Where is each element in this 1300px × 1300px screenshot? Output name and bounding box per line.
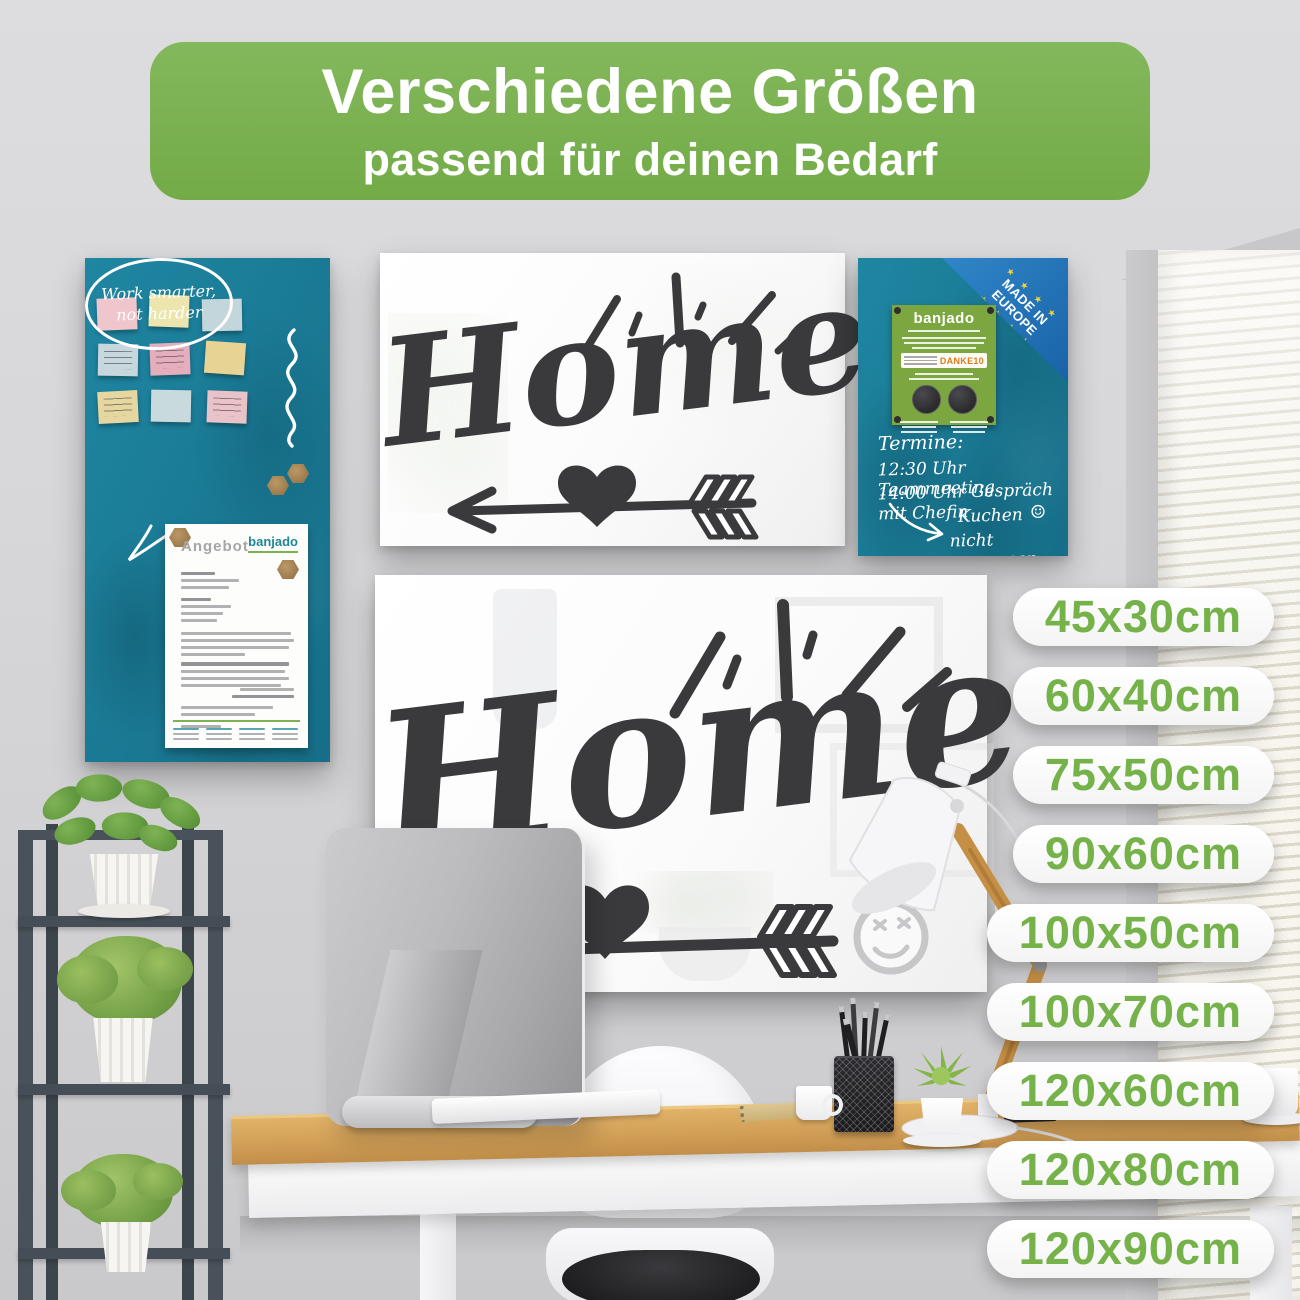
succulent-leaves	[903, 1046, 981, 1104]
home-board-small-doodles	[380, 253, 845, 546]
size-badge-list: 45x30cm 60x40cm 75x50cm 90x60cm 100x50cm…	[987, 588, 1274, 1278]
heart-arrow-icon	[452, 466, 756, 537]
size-badge: 75x50cm	[1013, 746, 1274, 804]
shelf-rail	[182, 824, 194, 1300]
heart-arrow-icon	[561, 885, 834, 975]
cork-magnet-icon	[267, 476, 289, 495]
plant-shelf	[18, 778, 233, 1300]
size-label: 100x50cm	[1019, 907, 1242, 959]
shelf-rail	[18, 836, 33, 1300]
document-title: Angebot	[181, 538, 249, 555]
reminder-word: Kuchen	[958, 505, 1023, 527]
page-title: Verschiedene Größen	[321, 56, 978, 128]
succulent-plant	[903, 1046, 981, 1109]
squiggle-doodle-icon	[280, 328, 304, 448]
coupon-box: DANKE10	[901, 353, 987, 368]
planner-board: MADE IN EUROPE banjado DANKE10	[858, 258, 1068, 556]
size-label: 60x40cm	[1045, 670, 1242, 722]
sticky-note	[97, 390, 139, 424]
desk-leg	[420, 1214, 456, 1300]
size-badge: 45x30cm	[1013, 588, 1274, 646]
brand-logo: banjado	[248, 534, 298, 553]
size-badge: 60x40cm	[1013, 667, 1274, 725]
size-label: 120x90cm	[1019, 1223, 1242, 1275]
size-badge: 90x60cm	[1013, 825, 1274, 883]
magnet-icon	[894, 307, 901, 314]
size-badge: 120x60cm	[987, 1062, 1274, 1120]
succulent-pot	[919, 1098, 965, 1138]
document-footer-columns	[173, 725, 300, 740]
home-board-small: Home	[380, 253, 845, 546]
magnet-icon	[987, 307, 994, 314]
product-scene: Verschiedene Größen passend für deinen B…	[0, 0, 1300, 1300]
plant-bush	[73, 1154, 173, 1228]
header-banner: Verschiedene Größen passend für deinen B…	[150, 42, 1150, 200]
sticky-note	[151, 390, 192, 423]
shelf-board	[18, 1084, 230, 1095]
size-label: 75x50cm	[1045, 749, 1242, 801]
magnet-icon	[987, 416, 994, 423]
dog-photos	[898, 385, 990, 414]
document-text-lines	[181, 594, 231, 622]
size-label: 90x60cm	[1045, 828, 1242, 880]
pot-saucer	[903, 1134, 981, 1147]
plant-pot	[98, 1222, 154, 1272]
plant-leaf	[52, 815, 97, 847]
offer-document: Angebot banjado	[165, 524, 308, 748]
speech-bubble: Work smarter, not harder	[83, 255, 234, 352]
plant-leaf	[74, 771, 123, 805]
page-subtitle: passend für deinen Bedarf	[362, 134, 937, 186]
size-badge: 120x90cm	[987, 1220, 1274, 1278]
smiley-icon: ☺	[1030, 502, 1047, 523]
size-badge: 120x80cm	[987, 1141, 1274, 1199]
schedule-heading: Termine:	[878, 431, 964, 455]
size-badge: 100x70cm	[987, 983, 1274, 1041]
speech-bubble-line2: not harder	[116, 302, 203, 326]
memo-board: Work smarter, not harder Angebot banjado	[85, 258, 330, 762]
pencil-holder	[834, 1056, 894, 1132]
dog-photo-icon	[948, 385, 977, 414]
dog-photo-icon	[912, 385, 941, 414]
sticky-note	[204, 341, 246, 376]
burst-lines-icon	[585, 277, 810, 351]
size-label: 45x30cm	[1045, 591, 1242, 643]
document-table-lines	[181, 658, 289, 687]
pot-saucer	[78, 904, 170, 918]
flyer: banjado DANKE10	[892, 305, 996, 425]
shelf-rail	[46, 824, 58, 1300]
sticky-note	[98, 344, 139, 377]
size-badge: 100x50cm	[987, 904, 1274, 962]
size-label: 120x80cm	[1019, 1144, 1242, 1196]
flyer-brand: banjado	[898, 310, 990, 327]
plant-pot	[90, 1018, 156, 1082]
size-label: 100x70cm	[1019, 986, 1242, 1038]
document-text-lines	[181, 568, 239, 589]
burst-lines-icon	[675, 605, 947, 713]
coffee-cup	[796, 1086, 832, 1120]
plant-pot	[86, 854, 162, 908]
coupon-code: DANKE10	[940, 356, 984, 366]
document-text-lines	[181, 628, 294, 656]
shelf-rail	[208, 836, 223, 1300]
chair-cushion	[562, 1250, 760, 1300]
magnet-icon	[894, 416, 901, 423]
handdrawn-arrow-icon	[884, 500, 954, 544]
size-label: 120x60cm	[1019, 1065, 1242, 1117]
cork-magnet-icon	[287, 464, 309, 483]
reminder-word: nicht vergessen	[949, 528, 1068, 556]
plant-bush	[70, 936, 182, 1024]
sticky-note	[206, 390, 247, 423]
document-total-lines	[232, 684, 294, 698]
cork-magnet-icon	[277, 560, 299, 579]
document-footer-rule	[173, 720, 300, 722]
